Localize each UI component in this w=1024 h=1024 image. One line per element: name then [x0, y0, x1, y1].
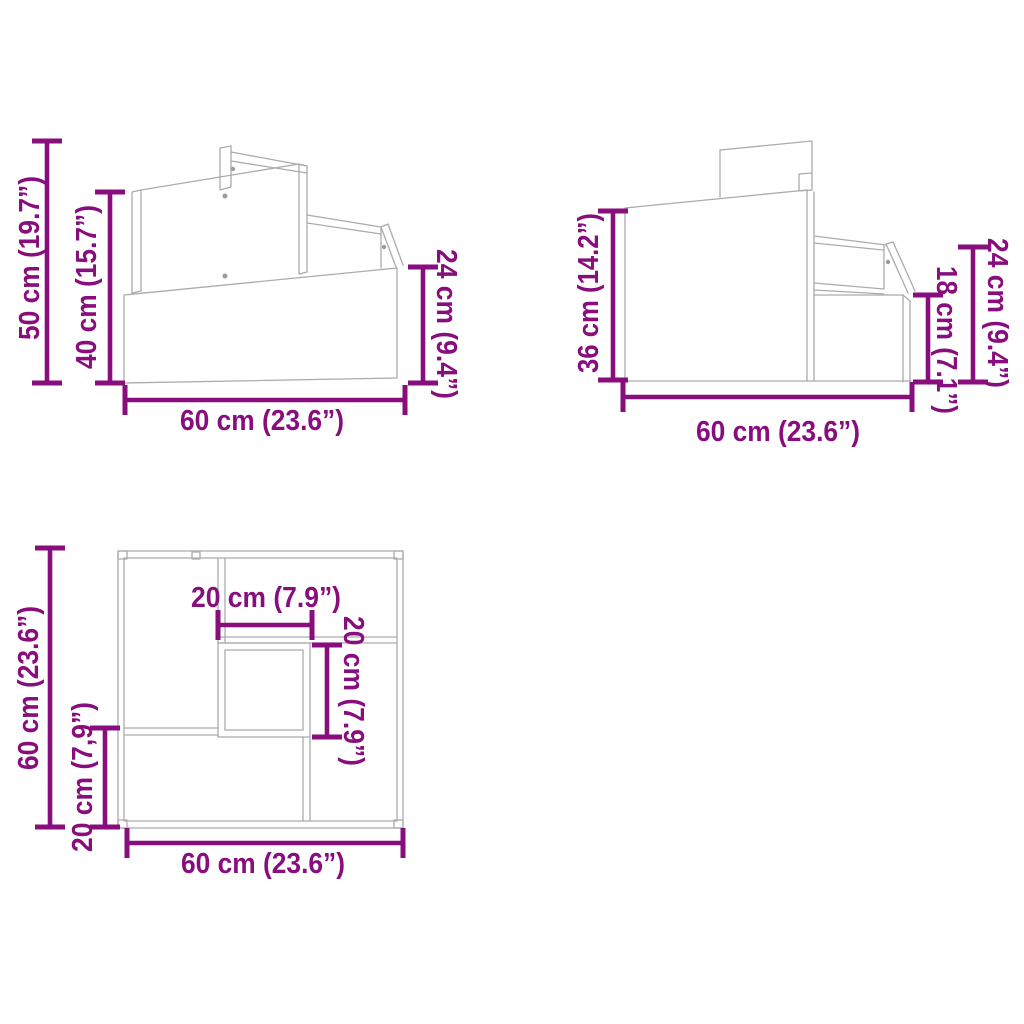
dimension-label: 60 cm (23.6”)	[181, 848, 345, 880]
dimension-label: 40 cm (15.7”)	[71, 205, 103, 369]
rail-slanted-post	[886, 242, 915, 293]
dim-side-a-panel-height: 40 cm (15.7”)	[71, 192, 125, 383]
dimension-label: 20 cm (7,9”)	[67, 702, 99, 852]
screw-dot	[231, 167, 235, 171]
lower-handrail	[307, 215, 381, 268]
dim-top-opening-width: 20 cm (7.9”)	[191, 582, 341, 640]
dimension-diagram-svg: 50 cm (19.7”) 40 cm (15.7”) 24 cm (9.4”)…	[0, 0, 1024, 1024]
middle-rail	[218, 637, 397, 643]
screw-dot	[886, 260, 890, 264]
opening-inner-outline	[225, 650, 303, 730]
screw-dot	[223, 194, 228, 199]
lower-handrail	[814, 283, 884, 294]
step-box	[814, 295, 910, 382]
screw-dot	[223, 274, 228, 279]
side-view-a: 50 cm (19.7”) 40 cm (15.7”) 24 cm (9.4”)…	[14, 141, 462, 437]
dimension-label: 60 cm (23.6”)	[696, 416, 860, 448]
dimension-label: 20 cm (7.9”)	[337, 616, 369, 766]
opening-outline	[218, 643, 310, 737]
lower-step-divider-vertical	[303, 737, 310, 821]
dim-top-depth-total: 60 cm (23.6”)	[13, 548, 65, 827]
top-view: 60 cm (23.6”) 20 cm (7,9”) 20 cm (7.9”) …	[13, 548, 403, 880]
top-handrail	[231, 152, 307, 173]
side-view-a-drawing	[124, 146, 403, 383]
dimension-label: 60 cm (23.6”)	[13, 606, 45, 770]
lower-step-divider-horizontal	[124, 728, 218, 735]
dim-side-a-width: 60 cm (23.6”)	[125, 385, 405, 437]
dim-side-b-width: 60 cm (23.6”)	[623, 382, 912, 448]
dimension-label: 50 cm (19.7”)	[14, 176, 46, 340]
dim-top-lower-step-depth: 20 cm (7,9”)	[67, 702, 120, 852]
dimension-label: 24 cm (9.4”)	[981, 238, 1013, 388]
side-view-b: 36 cm (14.2”) 18 cm (7.1”) 24 cm (9.4”) …	[573, 141, 1013, 448]
dim-side-b-total-height: 36 cm (14.2”)	[573, 211, 628, 380]
base-box-outline	[124, 268, 397, 383]
top-handrail-post	[220, 146, 231, 190]
product-dimensions-image: 50 cm (19.7”) 40 cm (15.7”) 24 cm (9.4”)…	[0, 0, 1024, 1024]
side-view-b-drawing	[625, 141, 915, 382]
dim-side-b-rail-height: 24 cm (9.4”)	[958, 238, 1013, 388]
dim-top-width: 60 cm (23.6”)	[127, 828, 403, 880]
backrest-panel	[720, 141, 812, 197]
dimension-label: 36 cm (14.2”)	[573, 213, 605, 373]
main-panel-outline	[625, 190, 911, 381]
backrest-bracket	[799, 173, 812, 191]
screw-dot	[382, 245, 386, 249]
upper-handrail	[814, 236, 886, 289]
back-panel-post	[132, 190, 141, 293]
dim-side-a-total-height: 50 cm (19.7”)	[14, 141, 62, 383]
dim-side-a-step-height: 24 cm (9.4”)	[408, 249, 462, 399]
dimension-label: 18 cm (7.1”)	[930, 266, 962, 414]
dim-top-opening-depth: 20 cm (7.9”)	[312, 616, 369, 766]
main-panel-right-edge	[807, 190, 814, 381]
dimension-label: 24 cm (9.4”)	[430, 249, 462, 399]
dimension-label: 60 cm (23.6”)	[180, 405, 344, 437]
dim-side-b-step-height: 18 cm (7.1”)	[913, 266, 962, 414]
dimension-label: 20 cm (7.9”)	[191, 582, 341, 614]
back-panel-right-edge	[299, 164, 307, 274]
